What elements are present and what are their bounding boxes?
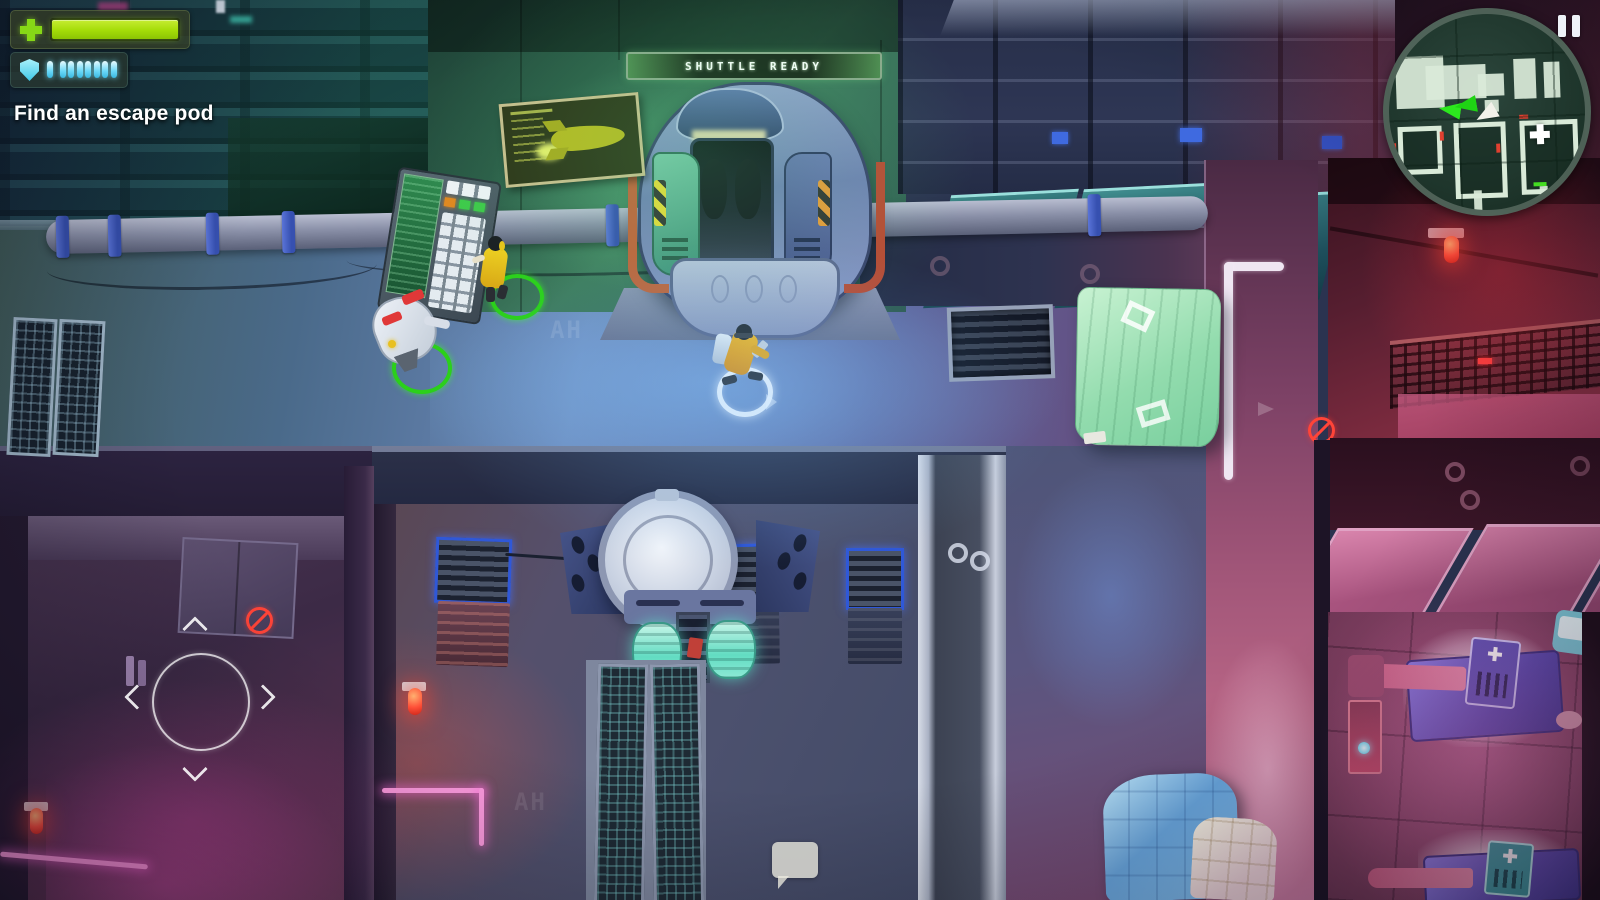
- east-hall-blue-glow: [1016, 466, 1206, 726]
- player-character: [700, 318, 792, 420]
- shield-bar: [10, 52, 128, 88]
- floor-decal: HA: [548, 316, 581, 344]
- red-lamp: [30, 808, 43, 834]
- locker-item-blue-1: [1180, 128, 1202, 142]
- virtual-joystick[interactable]: [122, 612, 278, 788]
- med-bed-headblock: [1348, 655, 1384, 697]
- floor-arrow-decal: [1258, 402, 1274, 416]
- rack-body: [848, 608, 902, 664]
- red-lamp: [408, 688, 422, 715]
- latch-slot: [636, 600, 680, 606]
- hazard-stripes: [818, 180, 830, 226]
- ally-engineer: [468, 232, 532, 314]
- shuttle-room-top-wall: [428, 0, 906, 52]
- health-track: [50, 18, 180, 41]
- server-rack: [844, 548, 906, 668]
- panel-slat: [794, 238, 820, 242]
- track-grate-right: [650, 664, 704, 900]
- speech-bubble-icon: [772, 842, 818, 878]
- shield-pip: [85, 61, 91, 78]
- shuttle-cable-left: [628, 162, 669, 293]
- neon-floor-line: [479, 788, 484, 846]
- pad-oval: [711, 275, 729, 303]
- engineer-visor: [499, 241, 505, 251]
- latch-slot: [700, 600, 744, 606]
- med-bed-monitor: [1465, 637, 1522, 710]
- shuttle-banner: SHUTTLE READY: [626, 52, 882, 80]
- health-plus-icon: [20, 19, 42, 41]
- shield-icon: [20, 59, 39, 81]
- pause-button[interactable]: [1552, 10, 1596, 44]
- med-bed-1: [1348, 637, 1588, 757]
- bl-left-wall: [0, 516, 28, 900]
- pad-oval: [779, 275, 797, 303]
- panel-hole: [569, 572, 586, 593]
- ally-drone: [368, 290, 452, 392]
- drone-light: [388, 340, 396, 348]
- shuttle-banner-text: SHUTTLE READY: [685, 60, 823, 73]
- panel-hole: [791, 532, 808, 553]
- panel-hole: [569, 534, 586, 555]
- med-bed-monitor: [1484, 840, 1535, 898]
- med-bed-2: [1358, 840, 1598, 900]
- health-bar: [10, 10, 190, 49]
- joystick-chevron-down: [182, 756, 207, 781]
- pipe-strap: [1087, 194, 1101, 236]
- poster-ship-fin: [542, 120, 567, 132]
- rack-body: [436, 601, 510, 667]
- minimap-objective-marker: [1529, 124, 1550, 145]
- track-grate-left: [594, 664, 648, 900]
- joystick-chevron-right: [250, 684, 275, 709]
- joystick-chevron-left: [124, 684, 149, 709]
- red-lamp: [1444, 236, 1459, 263]
- generator-machine: [540, 462, 850, 677]
- red-indicator: [1478, 358, 1492, 364]
- farright-bottom-wall: [1582, 612, 1600, 900]
- panel-hole: [775, 550, 792, 571]
- medbay-room: [1328, 612, 1600, 900]
- shuttle-seat: [701, 159, 727, 219]
- joystick-ring[interactable]: [152, 653, 250, 751]
- floor-grate-left-1: [6, 317, 57, 457]
- shuttle-seat: [735, 159, 761, 219]
- shuttle-opening: [690, 138, 774, 272]
- med-bed-arm: [1368, 868, 1473, 888]
- direction-arrow: [766, 394, 777, 410]
- pad-oval: [745, 275, 763, 303]
- rack-grille: [846, 548, 904, 610]
- floor-decal: HA: [512, 788, 545, 816]
- console-light-green: [458, 199, 470, 210]
- monitor-slats: [1493, 869, 1522, 889]
- shield-pip: [102, 61, 108, 78]
- pink-roof-panels: [1330, 522, 1600, 618]
- locker-item-blue-3: [1322, 136, 1342, 149]
- shield-pip: [111, 61, 117, 78]
- coolant-cylinder: [706, 620, 756, 679]
- machine-east-wall: [918, 455, 1006, 900]
- shield-pip: [68, 61, 74, 78]
- machine-right-panel: [756, 520, 820, 612]
- tarp-emblem: [1120, 300, 1155, 333]
- joystick-chevron-up: [182, 616, 207, 641]
- rack-grille: [434, 537, 512, 606]
- machine-room-left-wall: [372, 504, 396, 900]
- bl-right-wall: [344, 466, 374, 900]
- player-hat-brim: [734, 333, 753, 338]
- objective-text: Find an escape pod: [14, 102, 214, 126]
- player-ring: [717, 367, 773, 417]
- chat-button[interactable]: [772, 842, 824, 894]
- monitor-slats: [1476, 671, 1508, 698]
- pause-icon: [1558, 15, 1566, 37]
- red-valve: [687, 637, 704, 659]
- ceiling-light-strip: [940, 0, 1400, 36]
- red-panel-seam: [1330, 226, 1599, 277]
- medical-plus-icon: [1503, 848, 1518, 863]
- console-light-orange: [444, 197, 456, 208]
- console-light: [1358, 742, 1370, 754]
- engineer-leg: [486, 287, 495, 302]
- white-pipe-vertical: [1224, 262, 1233, 480]
- shield-pip: [77, 61, 83, 78]
- ship-schematic-poster: [499, 92, 646, 188]
- game-screen: SHUTTLE READY: [0, 0, 1600, 900]
- floor-grate-left-2: [52, 319, 105, 457]
- neon-floor-line: [382, 788, 484, 793]
- panel-slat: [794, 247, 820, 251]
- tarp-crate-white: [1190, 816, 1278, 900]
- tarp-label: [1083, 431, 1106, 445]
- health-fill: [52, 20, 178, 39]
- speech-bubble-tail: [778, 876, 789, 889]
- escape-shuttle: SHUTTLE READY: [612, 46, 890, 336]
- white-pipe-horizontal: [1224, 262, 1284, 271]
- console-light-green: [473, 202, 485, 213]
- pause-icon: [1572, 15, 1580, 37]
- tarp-crate-green: [1075, 287, 1222, 447]
- shield-pip: [60, 61, 66, 78]
- wall-vent: [947, 304, 1056, 382]
- tarp-emblem: [1136, 399, 1171, 428]
- medbay-side-console: [1348, 700, 1382, 774]
- shield-pips: [47, 61, 119, 83]
- panel-hole: [791, 570, 808, 591]
- shield-pip: [94, 61, 100, 78]
- rivet-band: [1330, 438, 1600, 530]
- poster-header-line: [510, 109, 552, 116]
- bottomleft-top-wall: [0, 446, 372, 525]
- dome-notch: [655, 489, 679, 501]
- locker-item-blue-2: [1052, 132, 1068, 144]
- shuttle-cable-right: [844, 162, 885, 293]
- backdrop-glint-teal: [230, 16, 252, 23]
- server-rack: [430, 537, 515, 672]
- med-bed-roller: [1556, 711, 1582, 729]
- medical-plus-icon: [1487, 646, 1502, 661]
- backdrop-glint-white: [216, 0, 225, 13]
- shield-pip: [47, 61, 53, 78]
